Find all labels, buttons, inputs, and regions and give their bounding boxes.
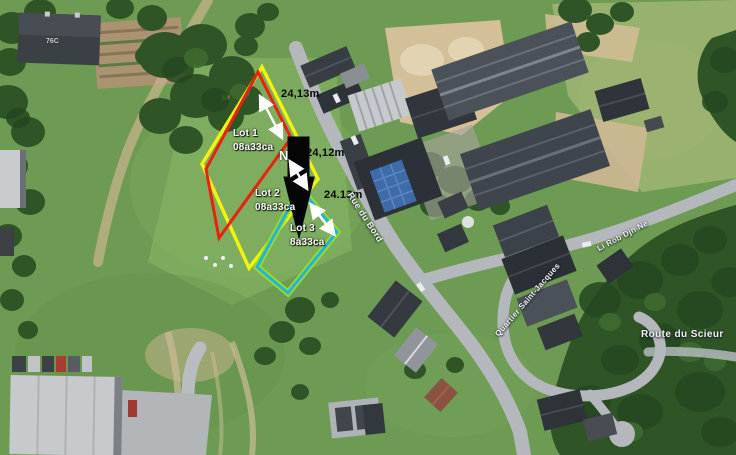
- warehouse-yard: [120, 390, 212, 455]
- farm-warehouse: [9, 375, 122, 455]
- street-label-route-du-scieur: Route du Scieur: [641, 330, 724, 340]
- lot3-name-label: Lot 3: [290, 224, 315, 234]
- building-76c: [17, 11, 101, 66]
- truck-row: [12, 356, 92, 372]
- lot2-area-label: 08a33ca: [255, 203, 295, 213]
- house-bottom-dark: [362, 403, 385, 435]
- red-truck: [128, 400, 137, 417]
- lot1-area-label: 08a33ca: [233, 143, 273, 153]
- north-indicator: N: [279, 149, 288, 162]
- measurement-label-lot2: 24,12m: [306, 148, 345, 159]
- trampoline: [462, 216, 474, 228]
- aerial-map-canvas: 76C N 24,13m 24,12m 24.13m Lot 1 08a33ca…: [0, 0, 736, 455]
- lot3-area-label: 8a33ca: [290, 238, 325, 248]
- lot2-name-label: Lot 2: [255, 189, 280, 199]
- measurement-label-lot1: 24,13m: [281, 89, 320, 100]
- building-number-label: 76C: [46, 38, 59, 45]
- lot1-name-label: Lot 1: [233, 129, 258, 139]
